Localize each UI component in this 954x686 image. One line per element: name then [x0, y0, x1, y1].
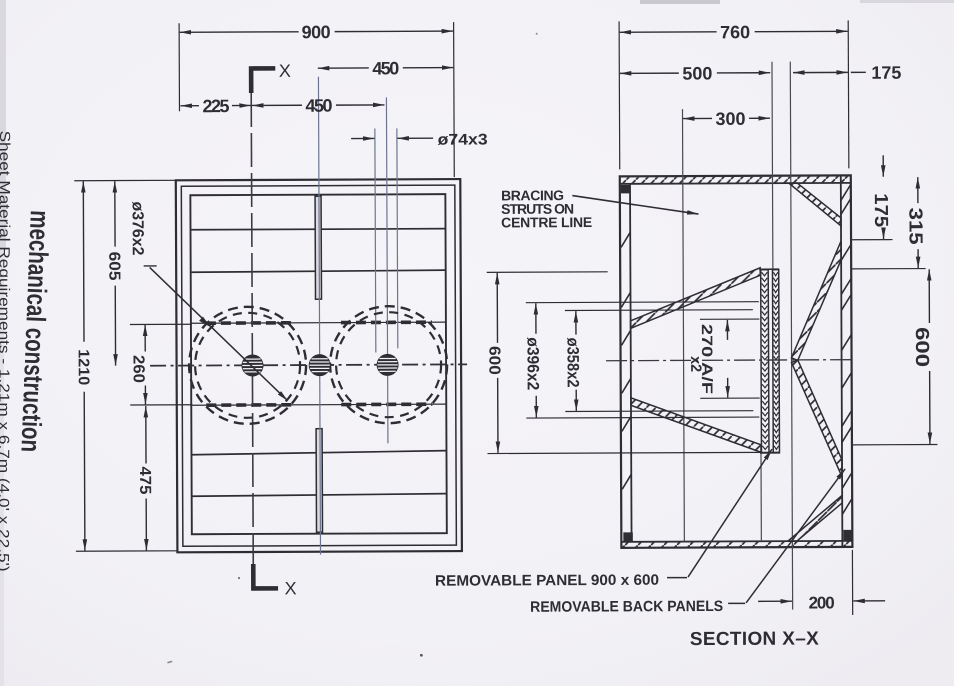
svg-text:300: 300 — [715, 109, 745, 129]
svg-text:ø396x2: ø396x2 — [523, 337, 541, 390]
svg-text:SECTION X–X: SECTION X–X — [690, 629, 819, 651]
svg-text:x2: x2 — [687, 356, 704, 372]
svg-text:475: 475 — [136, 466, 153, 494]
svg-text:600: 600 — [485, 346, 502, 375]
svg-text:260: 260 — [130, 355, 147, 383]
svg-text:Sheet Material Requirements -: Sheet Material Requirements - 1,21m x 6,… — [0, 131, 12, 572]
svg-text:605: 605 — [105, 252, 122, 281]
svg-text:760: 760 — [720, 22, 750, 42]
svg-text:ø358x2: ø358x2 — [563, 338, 581, 388]
svg-text:175: 175 — [871, 63, 901, 83]
svg-text:450: 450 — [372, 58, 399, 78]
svg-text:X: X — [285, 578, 297, 598]
svg-text:200: 200 — [809, 593, 835, 612]
svg-text:900: 900 — [302, 22, 331, 42]
svg-text:REMOVABLE PANEL 900 x 600: REMOVABLE PANEL 900 x 600 — [435, 572, 659, 590]
svg-text:X: X — [279, 61, 291, 81]
svg-text:600: 600 — [911, 327, 932, 367]
svg-text:450: 450 — [305, 96, 332, 116]
svg-text:315: 315 — [904, 208, 925, 246]
svg-text:225: 225 — [202, 96, 229, 116]
svg-text:1210: 1210 — [75, 349, 92, 385]
svg-text:ø376x2: ø376x2 — [129, 201, 146, 255]
svg-text:175: 175 — [870, 193, 891, 228]
svg-text:500: 500 — [682, 63, 712, 83]
svg-text:ø74x3: ø74x3 — [438, 131, 489, 148]
svg-text:CENTRE LINE: CENTRE LINE — [501, 214, 592, 230]
svg-text:REMOVABLE BACK PANELS: REMOVABLE BACK PANELS — [530, 598, 723, 616]
